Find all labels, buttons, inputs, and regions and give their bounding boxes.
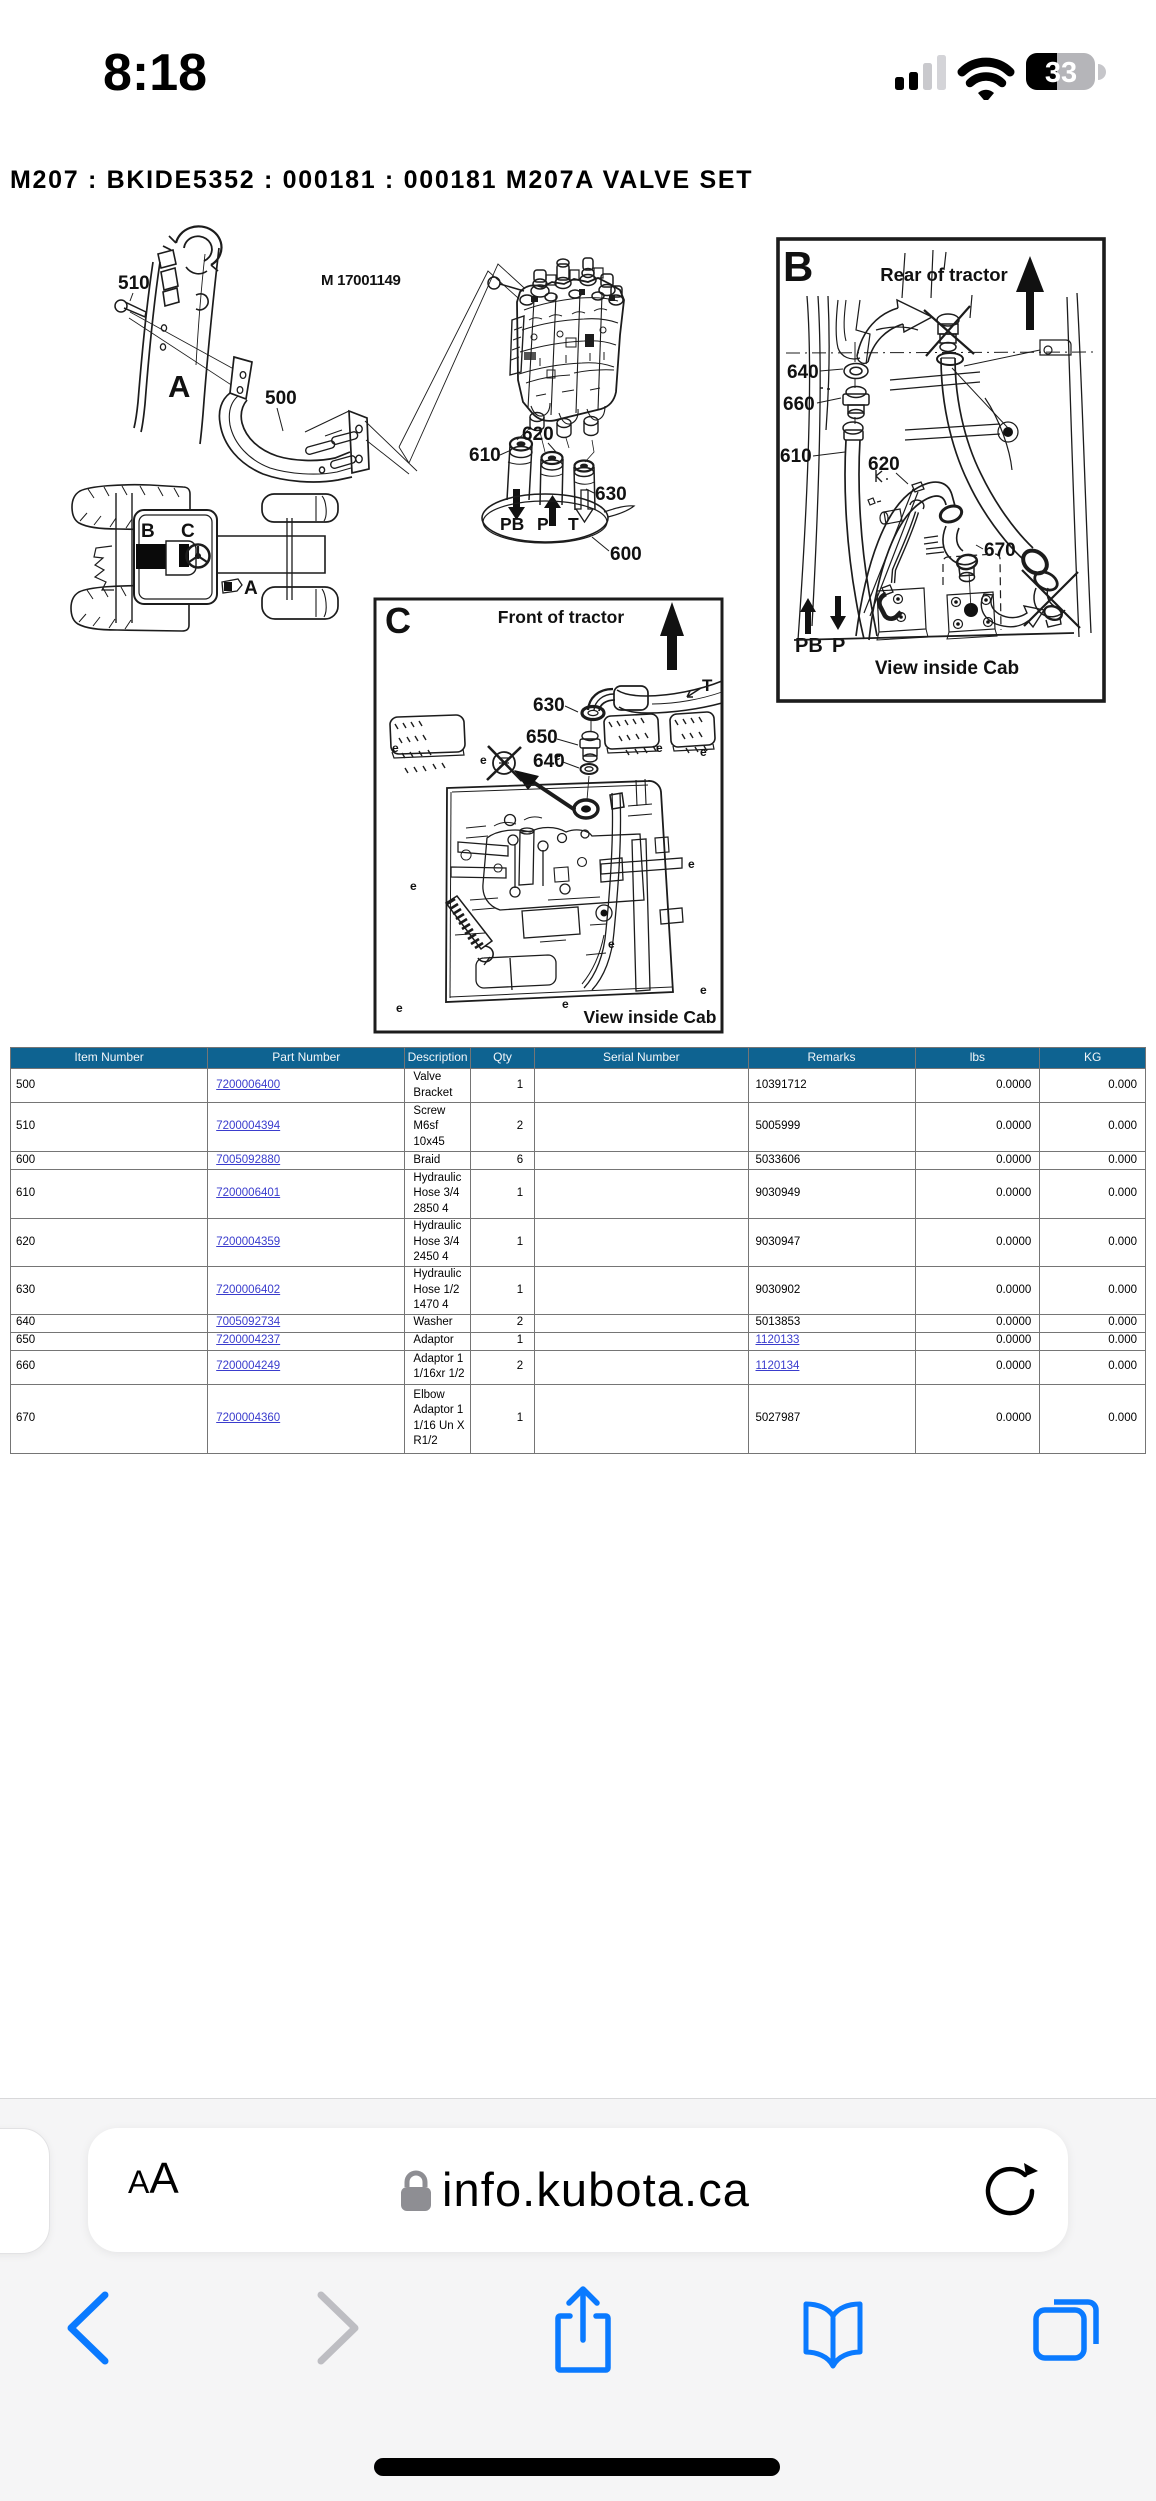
svg-text:630: 630 <box>533 695 565 716</box>
svg-text:e: e <box>392 741 399 755</box>
svg-text:33: 33 <box>1045 57 1077 89</box>
svg-text:660: 660 <box>783 394 815 415</box>
svg-text:B: B <box>141 521 155 542</box>
svg-text:C: C <box>181 521 195 542</box>
svg-text:620: 620 <box>522 424 554 445</box>
svg-text:e: e <box>480 753 487 767</box>
svg-text:P: P <box>537 514 549 534</box>
svg-text:A: A <box>168 369 190 404</box>
svg-text:e: e <box>554 749 561 763</box>
svg-text:e: e <box>656 741 663 755</box>
svg-text:View inside Cab: View inside Cab <box>584 1007 717 1027</box>
svg-text:e: e <box>608 937 615 951</box>
svg-text:610: 610 <box>780 446 812 467</box>
svg-text:640: 640 <box>787 362 819 383</box>
svg-text:e: e <box>562 997 569 1011</box>
svg-text:Front of tractor: Front of tractor <box>498 607 625 627</box>
svg-text:T: T <box>568 514 579 534</box>
svg-text:View inside Cab: View inside Cab <box>875 658 1019 679</box>
svg-text:e: e <box>700 983 707 997</box>
svg-text:A: A <box>244 578 258 599</box>
svg-text:510: 510 <box>118 273 150 294</box>
svg-text:PB: PB <box>795 635 823 657</box>
svg-text:e: e <box>688 857 695 871</box>
svg-text:C: C <box>385 600 411 641</box>
svg-text:630: 630 <box>595 484 627 505</box>
svg-text:B: B <box>783 243 813 290</box>
svg-text:M 17001149: M 17001149 <box>321 272 401 289</box>
svg-text:e: e <box>410 879 417 893</box>
svg-text:600: 600 <box>610 544 642 565</box>
svg-text:650: 650 <box>526 727 558 748</box>
svg-text:500: 500 <box>265 388 297 409</box>
svg-text:e: e <box>700 745 707 759</box>
svg-text:610: 610 <box>469 445 501 466</box>
svg-text:620: 620 <box>868 454 900 475</box>
svg-text:e: e <box>396 1001 403 1015</box>
svg-text:PB: PB <box>500 514 524 534</box>
